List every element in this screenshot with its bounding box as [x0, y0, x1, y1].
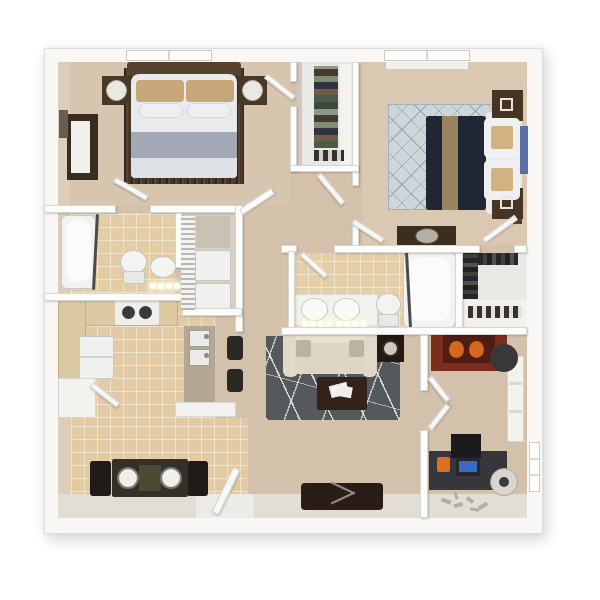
window-bedroom2-sill: [386, 62, 468, 69]
bath1-vanity-light-1: [150, 283, 156, 289]
bed2-duvet-band: [442, 116, 458, 210]
floor-ball-dot: [499, 477, 509, 487]
bed1-pillow-tan-right: [186, 80, 234, 102]
kitchen-bar-endcap: [175, 402, 236, 417]
wall-bath2-closet2: [455, 253, 463, 333]
bed1-pillow-white-left: [139, 103, 183, 118]
laptop-screen: [459, 461, 477, 472]
wall-bed1-bottom-left: [44, 205, 116, 213]
wall-bath2-left: [288, 251, 295, 333]
bath2-toilet-tank: [378, 314, 399, 327]
lamp1-right: [242, 80, 263, 101]
wall-closet1-left-top: [290, 62, 297, 82]
dining-plate-right: [160, 467, 182, 489]
window-office: [529, 442, 540, 492]
bed1-foot-blanket: [131, 158, 237, 178]
bedroom2-dresser-plate: [415, 228, 439, 244]
bed2-pillow-tan-b: [491, 168, 513, 191]
closet2-clothes-top: [478, 253, 518, 265]
printer: [451, 434, 481, 458]
laundry-shelf: [196, 216, 230, 248]
bath1-vanity-light-3: [166, 283, 172, 289]
wall-office-upper: [420, 335, 428, 391]
office-shelf-line-1: [509, 382, 522, 385]
lamp1-left: [106, 80, 127, 101]
office-chair-orange-a: [449, 341, 464, 358]
door-laundry-louver: [181, 216, 195, 310]
bath1-toilet-tank: [123, 271, 145, 284]
bath1-vanity-light-4: [174, 283, 180, 289]
bed1-pillow-white-right: [187, 103, 231, 118]
stove-burner-left: [122, 306, 135, 319]
bath1-tub-inner: [66, 220, 91, 282]
end-table-decor: [382, 340, 399, 357]
bar-stool-2: [227, 369, 243, 392]
bath1-vanity-light-2: [158, 283, 164, 289]
bath1-sink: [150, 256, 176, 278]
dining-centerpiece: [139, 465, 161, 491]
wall-office-lower: [420, 430, 428, 518]
wall-bath2-bottom: [281, 327, 527, 335]
bed1-pillow-tan-left: [136, 80, 184, 102]
laundry-washer: [195, 250, 231, 281]
sofa-pillow-right: [349, 340, 364, 357]
bed2-pillow-tan-a: [491, 126, 513, 149]
closet1-clothes: [314, 66, 338, 148]
wall-bed1-bottom-right: [150, 205, 243, 213]
office-shelf-line-2: [509, 410, 522, 413]
closet2-clothes-side: [462, 253, 478, 299]
wall-cross-b: [334, 245, 480, 253]
bath2-tub-inner: [409, 257, 450, 321]
kitchen-faucet-a: [204, 334, 209, 339]
floor-plan-image: [0, 0, 600, 600]
office-chair-round: [490, 344, 518, 372]
closet1-back-shadow: [297, 62, 302, 165]
bath2-sink-right: [333, 298, 360, 321]
window-office-div1: [530, 458, 539, 460]
wall-closet1-left: [290, 106, 297, 172]
bar-stool-1: [227, 336, 243, 360]
nightstand2-bottom-frame: [500, 196, 513, 209]
kitchen-faucet-b: [204, 353, 209, 358]
bedroom1-dresser-front: [71, 121, 90, 173]
wall-closet1-bottom: [290, 165, 359, 172]
closet1-shelf: [340, 64, 351, 164]
sofa-pillow-left: [296, 340, 311, 357]
closet1-shoes: [314, 150, 344, 161]
kitchen-fridge-divider: [79, 356, 114, 358]
office-chair-orange-b: [469, 341, 484, 358]
desk-orange-box: [437, 457, 450, 472]
wall-bath1-bottom: [44, 293, 182, 301]
window-bedroom2-divider: [426, 51, 428, 60]
bath2-sink-left: [301, 298, 328, 321]
window-office-div2: [530, 474, 539, 476]
bedroom2-wall-art: [520, 126, 528, 174]
bath2-toilet-bowl: [376, 293, 401, 316]
wall-cross-c: [514, 245, 527, 253]
dining-chair-left: [90, 461, 111, 496]
dining-chair-right: [187, 461, 208, 496]
nightstand2-top-frame: [500, 98, 513, 111]
bedroom1-wall-art: [59, 110, 68, 138]
stove-burner-right: [139, 306, 152, 319]
closet2-shoes: [468, 306, 522, 318]
bed1-duvet-band: [131, 132, 237, 158]
dining-plate-left: [117, 467, 139, 489]
window-bedroom1-divider: [168, 51, 170, 60]
